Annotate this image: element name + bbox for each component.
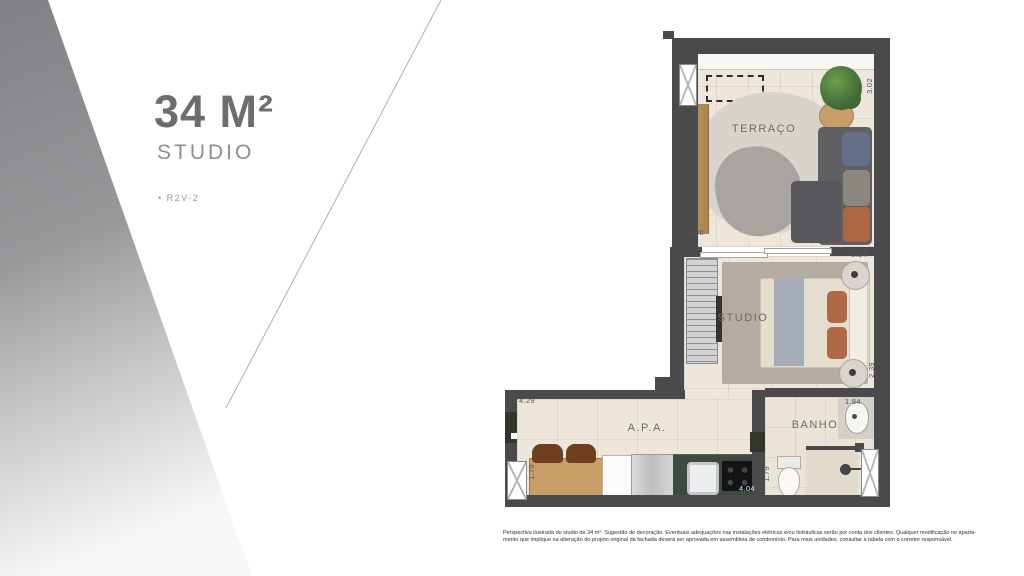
kitchen-sink: [687, 462, 719, 495]
wardrobe: [686, 258, 718, 364]
dining-table: [529, 458, 603, 499]
cabinet: [602, 455, 632, 497]
dim-studio-width: 3.34: [851, 250, 867, 259]
bed-blanket: [774, 278, 804, 366]
room-label-studio: STUDIO: [713, 312, 773, 324]
unit-code: • R2V-2: [158, 193, 199, 203]
sofa-pillow-rust: [843, 207, 870, 242]
sliding-door-panel-2: [764, 248, 832, 254]
fridge: [631, 454, 675, 496]
chair-1: [532, 444, 563, 463]
room-label-terraco: TERRAÇO: [719, 123, 809, 135]
plant-icon: [820, 66, 862, 110]
dim-terrace-side: 3.30: [688, 228, 704, 237]
bed-pillow-1: [827, 291, 847, 323]
dim-apa-side: 1.79: [527, 464, 536, 480]
wall-bottom: [505, 495, 890, 507]
chair-2: [566, 444, 596, 463]
wall-right: [874, 38, 890, 507]
dim-terrace-width: 3.02: [865, 78, 874, 94]
dim-banho-side: 1.79: [762, 466, 771, 482]
brochure-slide: 34 M² STUDIO • R2V-2: [0, 0, 1024, 576]
nightstand-bottom-lamp: [849, 369, 856, 376]
wall-top: [672, 38, 890, 54]
area-title: 34 M²: [154, 86, 274, 138]
shower-partition: [806, 446, 858, 450]
dim-studio-side: 2.39: [867, 362, 876, 378]
room-label-apa: A.P.A.: [612, 422, 682, 434]
area-subtitle: STUDIO: [157, 141, 254, 165]
diagonal-accent-line: [226, 0, 441, 408]
bed-headboard: [849, 282, 868, 366]
sofa-chaise: [791, 181, 841, 243]
room-label-banho: BANHO: [780, 419, 850, 431]
disclaimer-line-2: mento que implique na alteração do proje…: [503, 537, 953, 544]
sofa-pillow-gray: [843, 170, 870, 206]
shaft-hatch-mark: [511, 433, 517, 439]
bathroom-window: [861, 449, 879, 497]
dim-apa-width: 4.29: [519, 396, 535, 405]
wall-studio-left: [670, 247, 684, 390]
dim-kitchen-width: 4.04: [739, 484, 755, 493]
wall-bathroom-top: [765, 388, 874, 397]
sofa-pillow-blue: [842, 132, 870, 166]
sliding-door-panel-1: [700, 252, 768, 258]
dim-banho-width: 1.84: [845, 397, 861, 406]
terrace-window: [679, 64, 697, 106]
apa-window: [507, 461, 527, 500]
duct-shaft-bathroom: [750, 432, 765, 452]
shower-floor: [806, 450, 858, 495]
bed-pillow-2: [827, 327, 847, 359]
sink-faucet: [852, 414, 857, 419]
disclaimer-line-1: Perspectiva ilustrada do studio de 34 m²…: [503, 530, 976, 537]
nightstand-top-lamp: [851, 271, 858, 278]
